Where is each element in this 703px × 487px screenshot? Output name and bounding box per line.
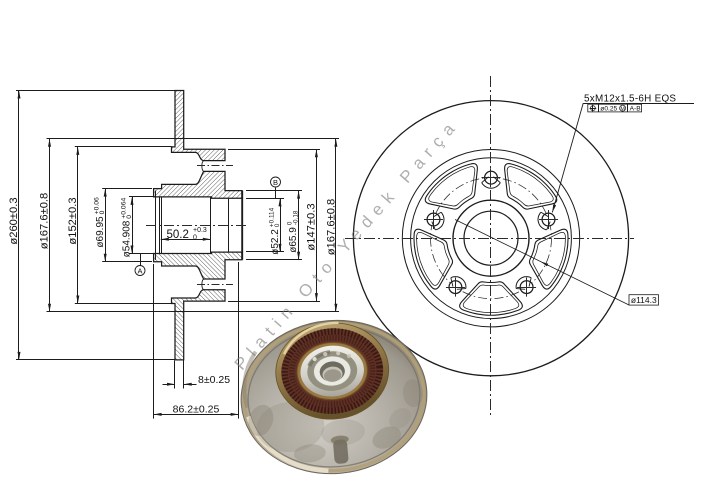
svg-text:+0.3: +0.3 xyxy=(193,227,207,234)
svg-text:ø52.2: ø52.2 xyxy=(270,229,281,255)
svg-text:B: B xyxy=(273,178,278,187)
svg-text:86.2±0.25: 86.2±0.25 xyxy=(173,404,220,416)
svg-text:ø0.25: ø0.25 xyxy=(600,106,617,113)
svg-text:ø260±0.3: ø260±0.3 xyxy=(8,197,20,244)
svg-text:ø167.6±0.8: ø167.6±0.8 xyxy=(325,199,337,256)
svg-text:A: A xyxy=(137,266,142,275)
svg-text:ø65.9: ø65.9 xyxy=(288,227,299,253)
svg-text:ø147±0.3: ø147±0.3 xyxy=(306,203,318,250)
svg-text:ø69.95: ø69.95 xyxy=(95,216,106,248)
svg-text:ø114.3: ø114.3 xyxy=(631,295,657,305)
svg-text:0: 0 xyxy=(99,210,106,214)
svg-text:ø152±0.3: ø152±0.3 xyxy=(67,197,79,244)
svg-text:0: 0 xyxy=(274,223,281,227)
svg-text:5xM12x1.5-6H EQS: 5xM12x1.5-6H EQS xyxy=(584,93,676,104)
svg-text:50.2: 50.2 xyxy=(167,229,189,241)
svg-text:-0.18: -0.18 xyxy=(292,210,299,225)
svg-text:ø54.908: ø54.908 xyxy=(122,220,133,257)
svg-text:0: 0 xyxy=(126,215,133,219)
svg-text:A-B: A-B xyxy=(630,106,642,113)
svg-text:ø167.6±0.8: ø167.6±0.8 xyxy=(39,193,51,250)
svg-text:M: M xyxy=(620,106,625,112)
svg-text:0: 0 xyxy=(193,234,197,241)
svg-text:8±0.25: 8±0.25 xyxy=(198,374,230,386)
